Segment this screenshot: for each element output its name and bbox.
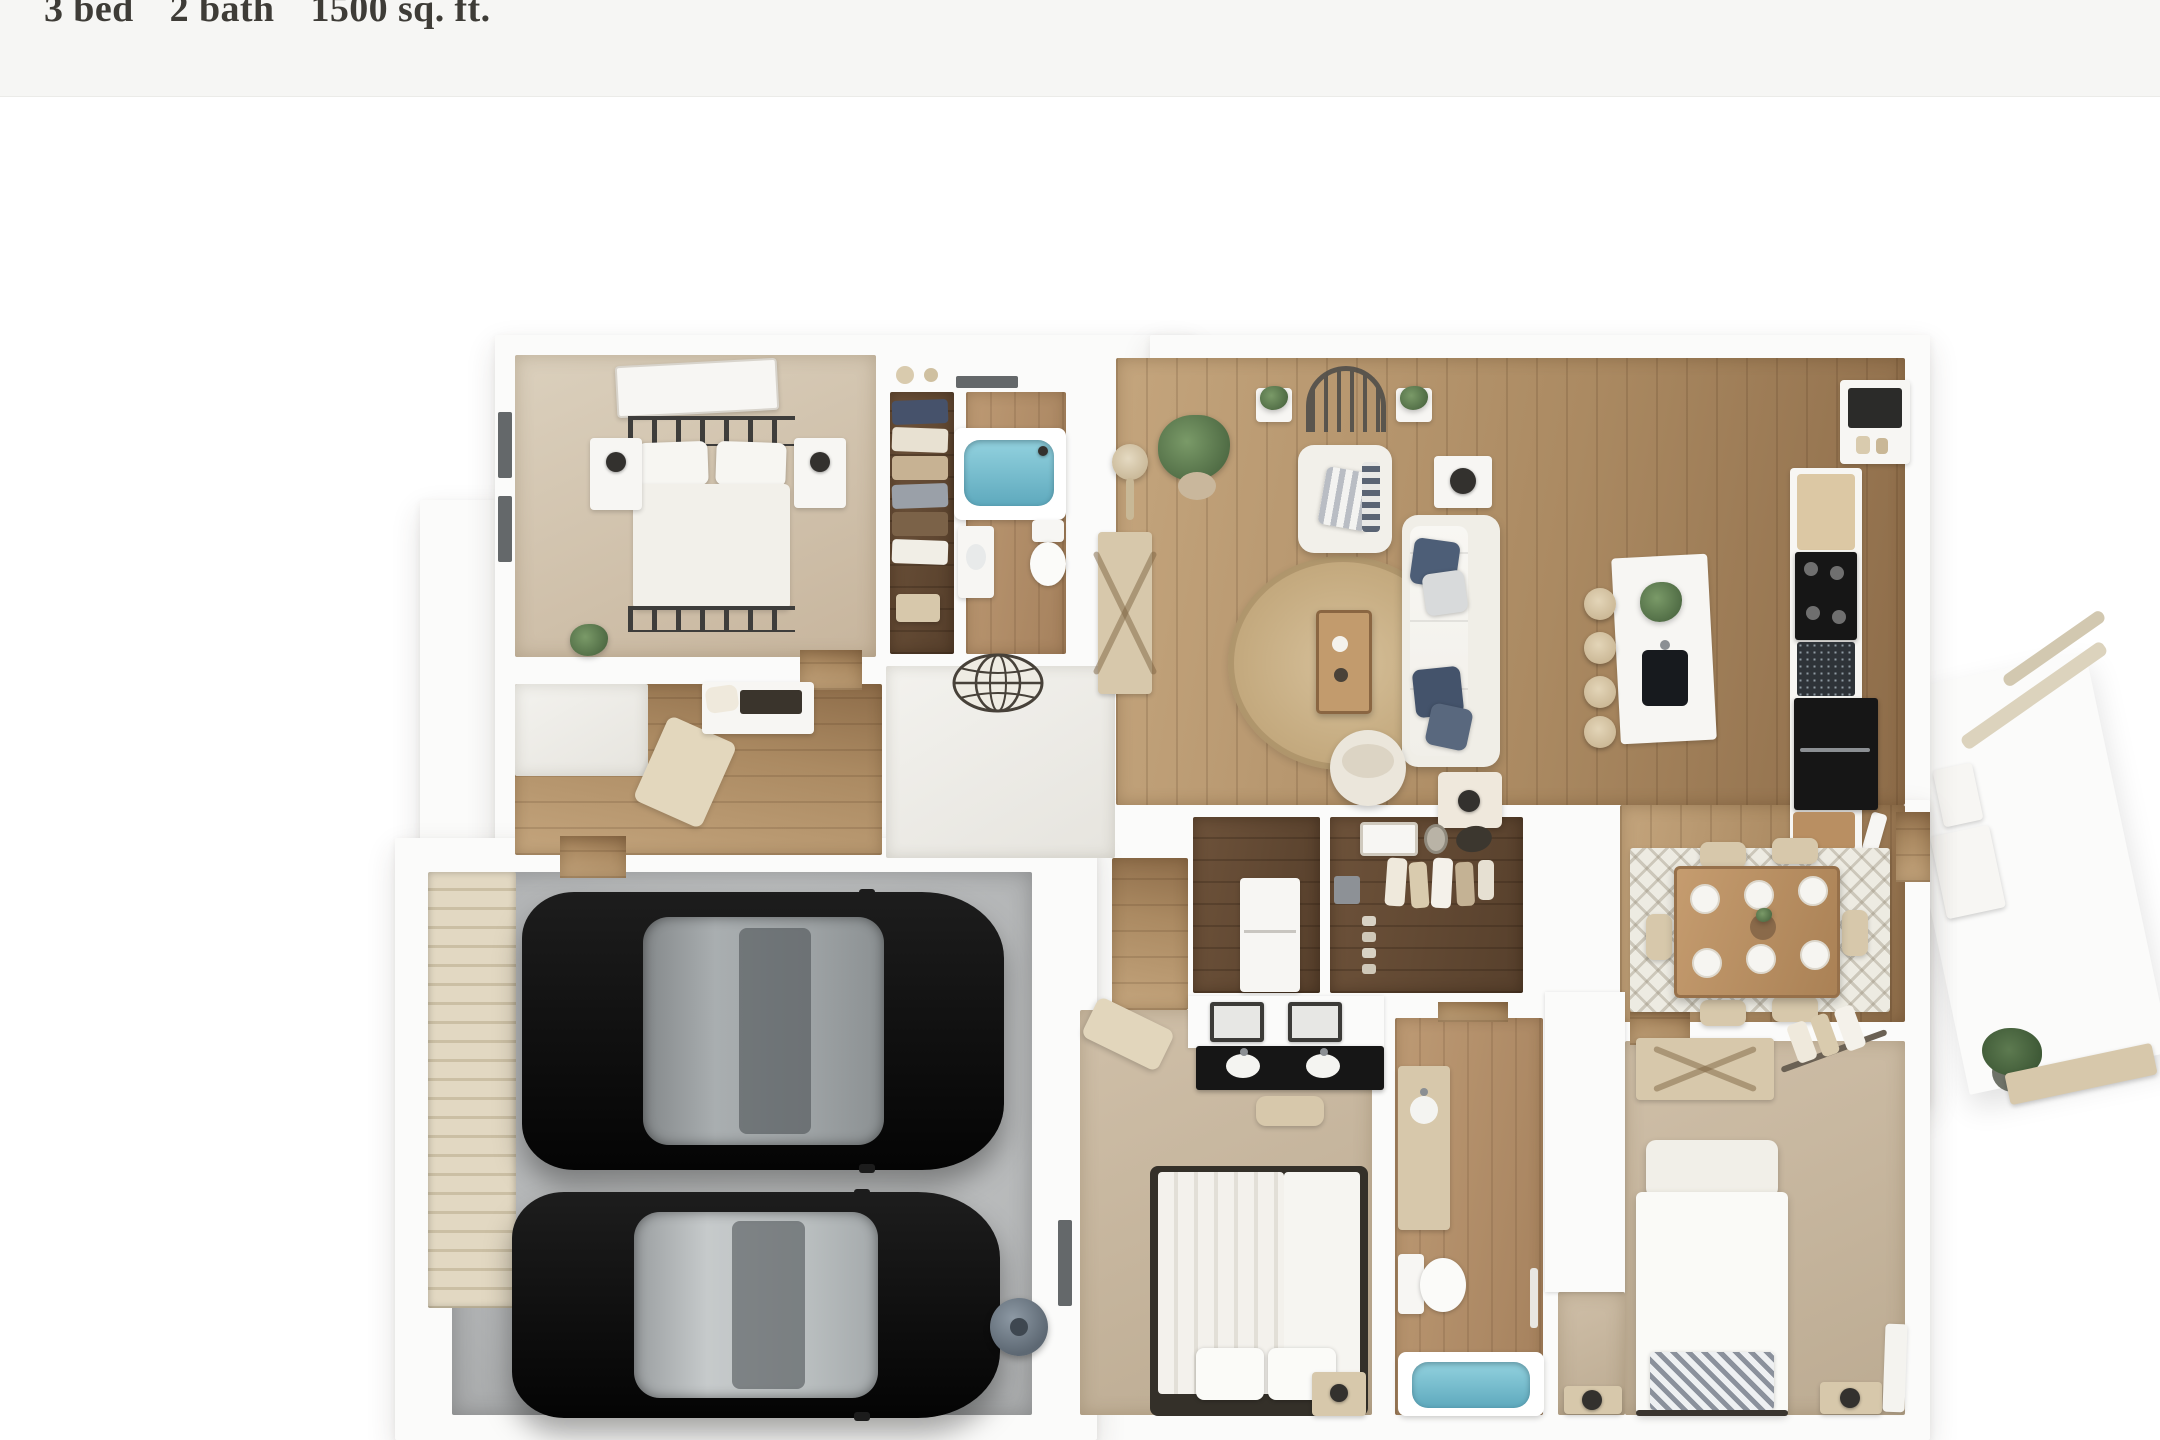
island-sink — [1642, 650, 1688, 706]
vanity-stool — [1256, 1096, 1324, 1126]
armchair-throw — [1362, 462, 1380, 532]
hanging-clothes — [1478, 860, 1494, 900]
fridge-handle — [1800, 748, 1870, 752]
cooktop-burner — [1830, 566, 1844, 580]
hanging-clothes — [892, 399, 949, 425]
desk-laptop — [740, 690, 802, 714]
closet-shelf-basket — [896, 366, 914, 384]
table-lamp — [1582, 1390, 1602, 1410]
plant-pot — [1178, 472, 1216, 500]
place-setting — [1744, 880, 1774, 910]
place-setting — [1798, 876, 1828, 906]
toilet — [1420, 1258, 1466, 1312]
table-lamp — [1450, 468, 1476, 494]
hanging-clothes — [892, 456, 948, 480]
desk-chair — [704, 684, 739, 714]
vanity-faucet — [1320, 1048, 1328, 1056]
refrigerator — [1794, 698, 1878, 810]
vanity-faucet — [1420, 1088, 1428, 1096]
coffee-table-decor — [1334, 668, 1348, 682]
pantry-interior — [1848, 388, 1902, 428]
bed-headboard-rail — [628, 416, 795, 446]
bed-duvet — [633, 484, 790, 610]
sofa-pillow-navy — [1424, 702, 1474, 752]
vanity-faucet — [1240, 1048, 1248, 1056]
dining-chair — [1700, 1000, 1746, 1026]
vanity-sink — [1306, 1054, 1340, 1078]
cooktop-burner — [1804, 562, 1818, 576]
car — [512, 1192, 1000, 1418]
bathtub-water — [1412, 1362, 1530, 1408]
bar-stool — [1584, 716, 1616, 748]
hanging-clothes — [1431, 858, 1454, 909]
shoe-stack — [1362, 948, 1376, 958]
hanging-clothes — [892, 512, 948, 536]
bed-pillow — [1196, 1348, 1264, 1400]
entry-threshold — [1896, 812, 1930, 882]
vanity-sink — [1410, 1096, 1438, 1124]
hallway-pale-corner — [515, 684, 648, 776]
sofa-pillow-gray — [1421, 569, 1468, 616]
garage-door — [428, 872, 516, 1308]
place-setting — [1746, 944, 1776, 974]
toilet-tank — [1032, 520, 1064, 542]
dining-chair — [1646, 914, 1672, 960]
toilet — [1030, 542, 1066, 586]
dining-chair — [1772, 838, 1818, 864]
bathroom-window — [956, 376, 1018, 388]
window — [498, 496, 512, 562]
closet-shelf-frame — [1360, 822, 1418, 856]
storage-box — [896, 594, 940, 622]
vanity-mirror — [1210, 1002, 1264, 1042]
appliance-divider — [1244, 930, 1297, 933]
floor-lamp-stem — [1126, 478, 1134, 520]
window — [1058, 1220, 1072, 1306]
shoe-stack — [1362, 916, 1376, 926]
console-table — [1098, 532, 1152, 694]
corridor-floor — [1112, 858, 1188, 1010]
nightstand — [590, 438, 642, 510]
world-rug — [950, 650, 1046, 716]
bar-stool — [1584, 632, 1616, 664]
car-mirror — [859, 1164, 875, 1173]
hanging-clothes — [1455, 862, 1475, 907]
bedroom3-closet-block — [1545, 992, 1625, 1292]
dining-chair — [1700, 842, 1746, 868]
car-mirror — [859, 889, 875, 898]
hanging-clothes — [892, 427, 949, 453]
hanging-clothes — [892, 539, 949, 565]
master-bath-threshold — [1438, 1002, 1508, 1022]
car-mirror — [854, 1412, 870, 1421]
coffee-table — [1316, 610, 1372, 714]
table-lamp — [606, 452, 626, 472]
pantry-item — [1876, 438, 1888, 454]
car-roof — [739, 928, 811, 1134]
bed-foot-rail — [1636, 1410, 1788, 1416]
table-lamp — [1458, 790, 1480, 812]
nightstand — [794, 438, 846, 508]
place-setting — [1692, 948, 1722, 978]
table-lamp — [810, 452, 830, 472]
cooktop-burner — [1832, 610, 1846, 624]
closet-round-mirror — [1424, 824, 1448, 854]
place-setting — [1690, 884, 1720, 914]
car — [522, 892, 1004, 1170]
vanity-sink — [966, 544, 986, 570]
tub-faucet — [1038, 446, 1048, 456]
coffee-table-decor — [1332, 636, 1348, 652]
window — [498, 412, 512, 478]
closet-gray-box — [1334, 876, 1360, 904]
floor-plan-image[interactable] — [0, 0, 2160, 1440]
hanging-clothes — [1384, 857, 1407, 906]
herringbone-throw — [1650, 1352, 1774, 1410]
bed-foot-rail — [628, 606, 795, 632]
cooktop-burner — [1806, 606, 1820, 620]
dining-chair — [1842, 910, 1868, 956]
bar-stool — [1584, 676, 1616, 708]
closet-shelf-basket — [924, 368, 938, 382]
living-kitchen-floor — [1116, 358, 1905, 805]
bed-headboard — [1646, 1140, 1778, 1198]
dresser — [1636, 1038, 1774, 1100]
bed-pillow — [715, 441, 786, 487]
table-lamp — [1330, 1384, 1348, 1402]
vanity-mirror — [1288, 1002, 1342, 1042]
bed-pillow — [637, 441, 708, 487]
pouf-seat — [1342, 744, 1394, 778]
garage-door-threshold — [560, 836, 626, 878]
towel-rail — [1530, 1268, 1538, 1328]
vanity-sink — [1226, 1054, 1260, 1078]
dual-sink-vanity — [1196, 1046, 1384, 1090]
island-faucet — [1660, 640, 1670, 650]
table-lamp — [1840, 1388, 1860, 1408]
place-setting — [1800, 940, 1830, 970]
floor-lamp — [1112, 444, 1148, 480]
car-roof — [732, 1221, 805, 1388]
hanging-clothes — [892, 483, 949, 509]
shoe-stack — [1362, 932, 1376, 942]
car-mirror — [854, 1189, 870, 1198]
laundry-appliance — [1240, 878, 1300, 992]
wall-art — [615, 358, 779, 418]
granite-sink-section — [1797, 642, 1855, 696]
shoe-stack — [1362, 964, 1376, 974]
bar-stool — [1584, 588, 1616, 620]
window-curtain — [1882, 1324, 1907, 1413]
cutting-board — [1797, 474, 1855, 550]
water-heater-cap — [1010, 1318, 1028, 1336]
pantry-item — [1856, 436, 1870, 454]
hanging-clothes — [1408, 861, 1429, 908]
